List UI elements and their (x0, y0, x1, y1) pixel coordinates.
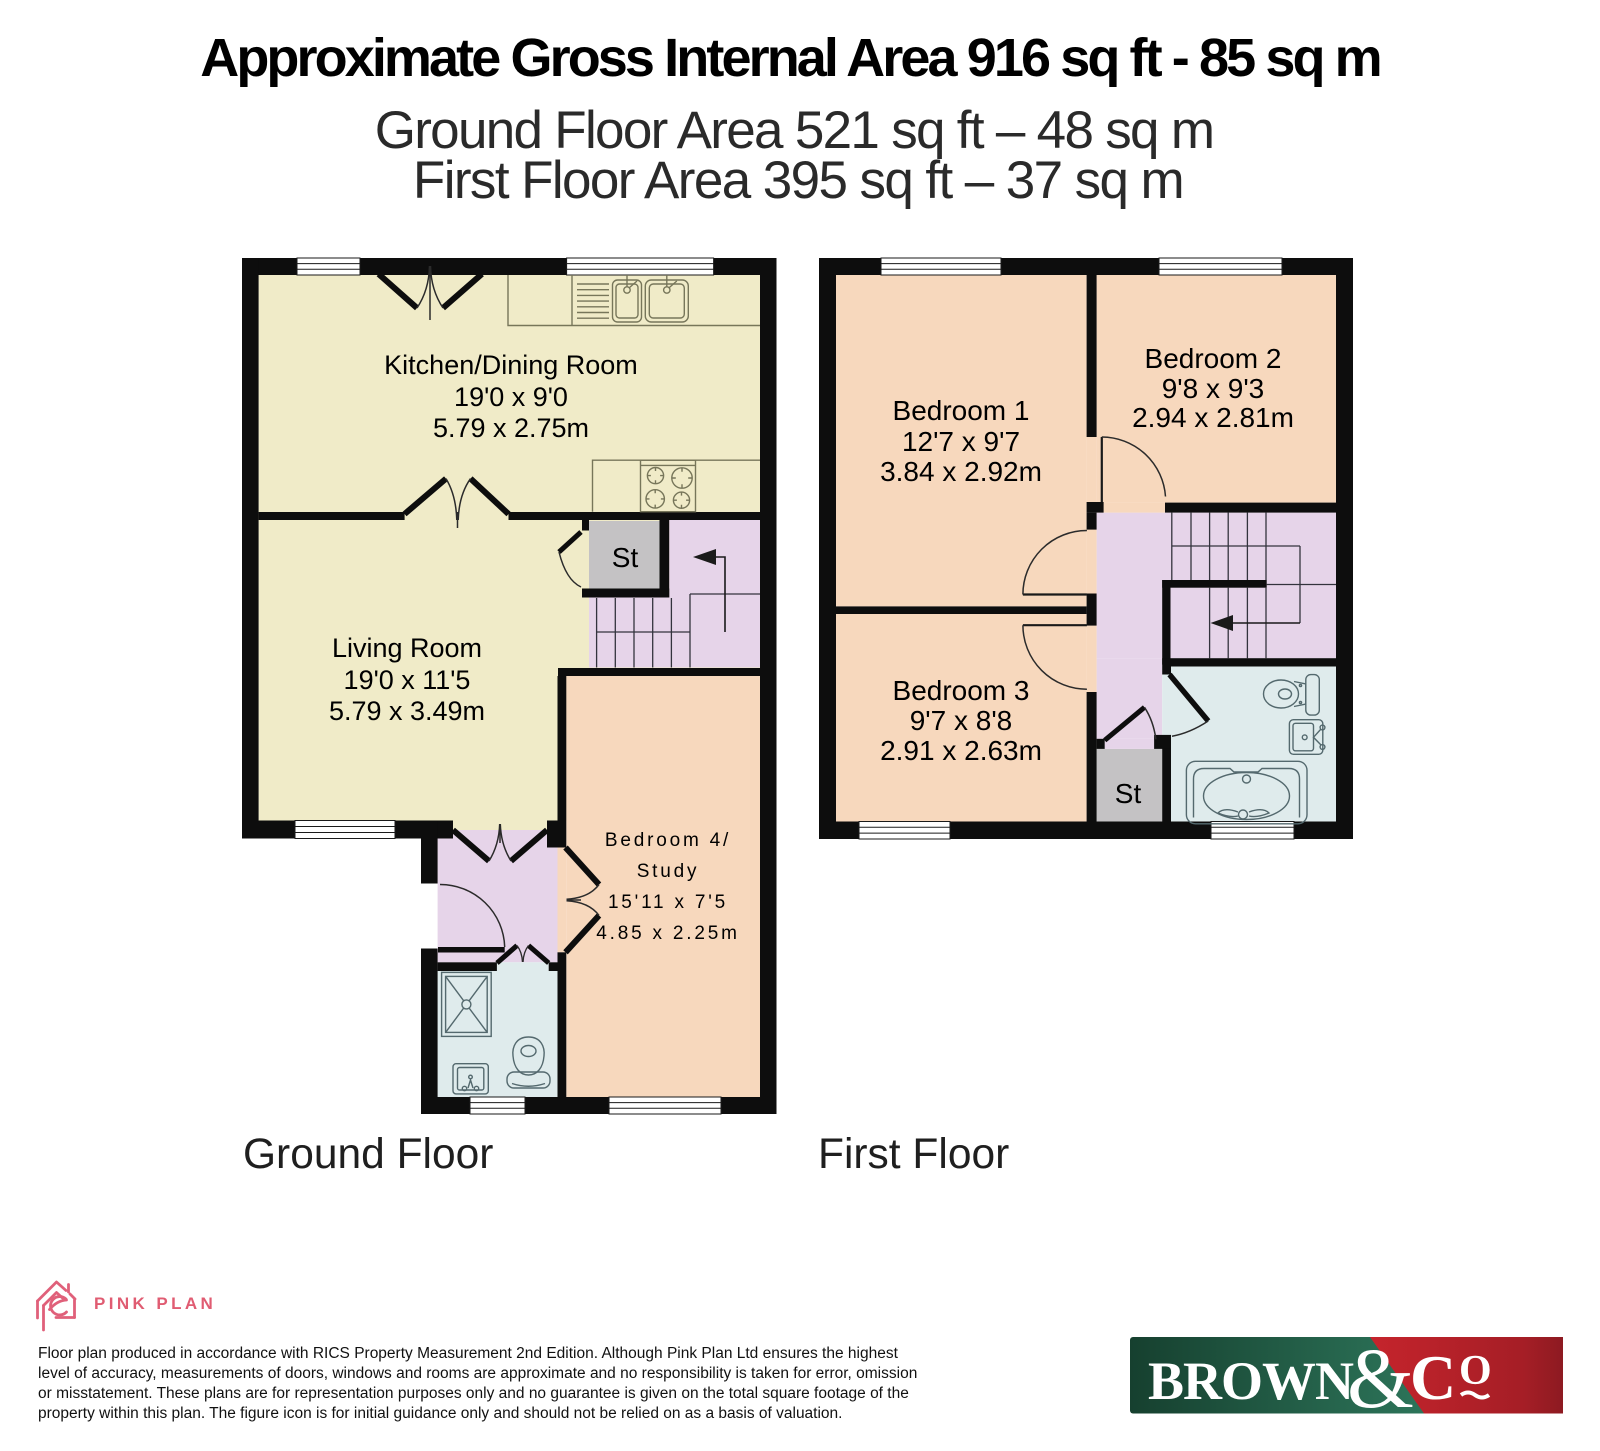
svg-text:4.85 x 2.25m: 4.85 x 2.25m (596, 923, 739, 944)
svg-text:First Floor Area 395 sq ft – 3: First Floor Area 395 sq ft – 37 sq m (413, 151, 1183, 210)
svg-text:First Floor: First Floor (818, 1131, 1009, 1178)
svg-text:3.84 x 2.92m: 3.84 x 2.92m (880, 456, 1042, 487)
svg-text:9'7 x 8'8: 9'7 x 8'8 (910, 705, 1013, 736)
svg-text:5.79 x 3.49m: 5.79 x 3.49m (329, 696, 485, 726)
svg-text:St: St (1115, 778, 1142, 809)
svg-text:2.91 x 2.63m: 2.91 x 2.63m (880, 735, 1042, 766)
svg-text:9'8 x 9'3: 9'8 x 9'3 (1162, 373, 1265, 404)
svg-text:19'0 x 11'5: 19'0 x 11'5 (344, 665, 471, 695)
svg-text:or misstatement. These plans a: or misstatement. These plans are for rep… (38, 1385, 909, 1402)
svg-text:5.79 x 2.75m: 5.79 x 2.75m (433, 413, 589, 443)
svg-text:Approximate Gross Internal Are: Approximate Gross Internal Area 916 sq f… (200, 28, 1380, 88)
svg-text:&: & (1347, 1330, 1414, 1426)
svg-text:BROWN: BROWN (1148, 1351, 1354, 1411)
svg-text:PINK PLAN: PINK PLAN (94, 1294, 216, 1313)
svg-text:Study: Study (637, 861, 700, 882)
svg-text:Floor plan produced in accorda: Floor plan produced in accordance with R… (38, 1345, 899, 1362)
svg-text:15'11 x 7'5: 15'11 x 7'5 (608, 892, 728, 913)
svg-text:O: O (1459, 1348, 1492, 1394)
svg-text:Bedroom 1: Bedroom 1 (893, 395, 1030, 426)
svg-text:Bedroom 2: Bedroom 2 (1145, 343, 1282, 374)
svg-text:property within this plan. The: property within this plan. The figure ic… (38, 1405, 842, 1422)
svg-text:19'0 x 9'0: 19'0 x 9'0 (454, 382, 568, 412)
svg-text:2.94 x 2.81m: 2.94 x 2.81m (1132, 402, 1294, 433)
svg-text:Living Room: Living Room (332, 633, 482, 663)
svg-text:12'7 x 9'7: 12'7 x 9'7 (902, 426, 1020, 457)
svg-text:St: St (612, 542, 639, 573)
svg-text:C: C (1410, 1342, 1456, 1413)
svg-text:Kitchen/Dining Room: Kitchen/Dining Room (384, 350, 638, 380)
svg-text:Ground Floor: Ground Floor (243, 1131, 493, 1178)
svg-text:level of accuracy, measurement: level of accuracy, measurements of doors… (38, 1365, 917, 1382)
svg-text:Bedroom 3: Bedroom 3 (893, 675, 1030, 706)
svg-text:Bedroom 4/: Bedroom 4/ (605, 830, 731, 851)
